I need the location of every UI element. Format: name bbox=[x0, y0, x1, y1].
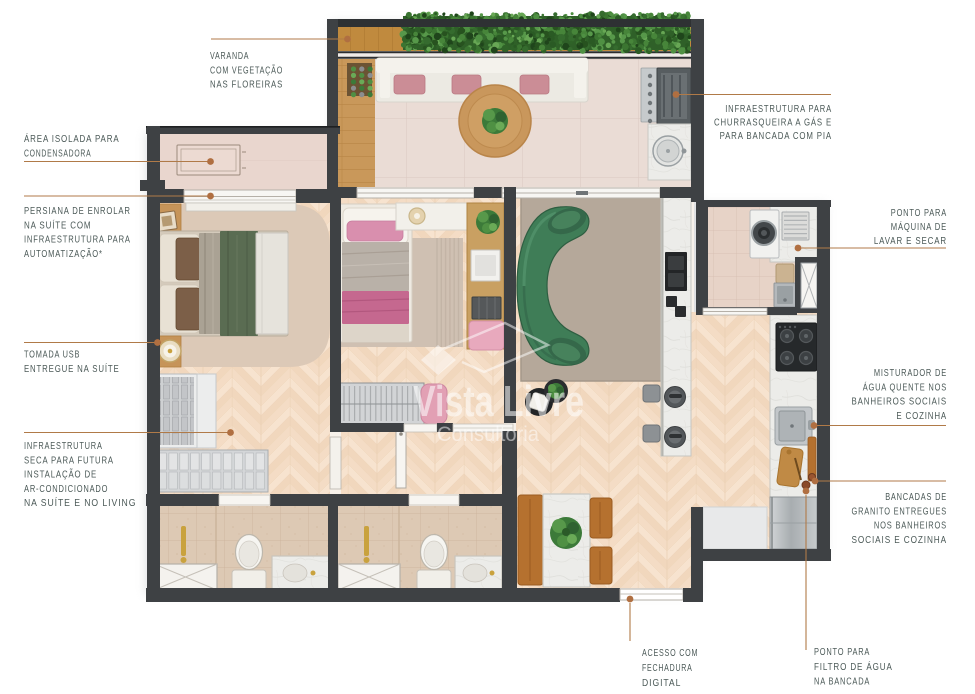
svg-text:NA SUÍTE COM: NA SUÍTE COM bbox=[24, 220, 91, 231]
svg-text:PONTO PARA: PONTO PARA bbox=[814, 647, 870, 658]
svg-text:NA BANCADA: NA BANCADA bbox=[814, 677, 870, 688]
svg-text:LAVAR E SECAR: LAVAR E SECAR bbox=[874, 236, 947, 247]
svg-text:INFRAESTRUTURA PARA: INFRAESTRUTURA PARA bbox=[725, 104, 832, 115]
svg-text:E COZINHA: E COZINHA bbox=[896, 411, 947, 422]
svg-text:AUTOMATIZAÇÃO*: AUTOMATIZAÇÃO* bbox=[24, 249, 103, 260]
svg-text:NOS BANHEIROS: NOS BANHEIROS bbox=[874, 521, 947, 532]
svg-text:MISTURADOR DE: MISTURADOR DE bbox=[874, 368, 947, 379]
svg-text:NAS FLOREIRAS: NAS FLOREIRAS bbox=[210, 80, 283, 91]
svg-text:BANCADAS DE: BANCADAS DE bbox=[885, 492, 947, 503]
svg-text:ÁREA ISOLADA PARA: ÁREA ISOLADA PARA bbox=[24, 134, 120, 145]
svg-text:PONTO PARA: PONTO PARA bbox=[891, 208, 947, 219]
svg-text:Consultoria: Consultoria bbox=[437, 423, 539, 446]
svg-text:CHURRASQUEIRA A GÁS E: CHURRASQUEIRA A GÁS E bbox=[714, 118, 832, 129]
svg-text:FECHADURA: FECHADURA bbox=[642, 663, 693, 674]
svg-text:INFRAESTRUTURA PARA: INFRAESTRUTURA PARA bbox=[24, 235, 131, 246]
svg-text:FILTRO DE ÁGUA: FILTRO DE ÁGUA bbox=[814, 662, 893, 673]
svg-text:INFRAESTRUTURA: INFRAESTRUTURA bbox=[24, 441, 103, 452]
svg-text:Vista Livre: Vista Livre bbox=[413, 377, 584, 426]
svg-text:PARA BANCADA COM PIA: PARA BANCADA COM PIA bbox=[720, 131, 832, 142]
svg-text:VARANDA: VARANDA bbox=[210, 51, 249, 62]
svg-text:GRANITO ENTREGUES: GRANITO ENTREGUES bbox=[852, 506, 948, 517]
svg-text:NA SUÍTE E NO LIVING: NA SUÍTE E NO LIVING bbox=[24, 498, 136, 509]
svg-text:PERSIANA DE ENROLAR: PERSIANA DE ENROLAR bbox=[24, 206, 131, 217]
svg-text:MÁQUINA DE: MÁQUINA DE bbox=[891, 222, 947, 233]
svg-text:SECA PARA FUTURA: SECA PARA FUTURA bbox=[24, 455, 114, 466]
svg-text:ACESSO COM: ACESSO COM bbox=[642, 648, 698, 659]
svg-text:ENTREGUE NA SUÍTE: ENTREGUE NA SUÍTE bbox=[24, 364, 120, 375]
svg-text:CONDENSADORA: CONDENSADORA bbox=[24, 148, 91, 159]
svg-text:BANHEIROS SOCIAIS: BANHEIROS SOCIAIS bbox=[852, 397, 948, 408]
svg-text:TOMADA USB: TOMADA USB bbox=[24, 350, 80, 361]
svg-text:ÁGUA QUENTE NOS: ÁGUA QUENTE NOS bbox=[863, 382, 947, 393]
svg-text:SOCIAIS E COZINHA: SOCIAIS E COZINHA bbox=[852, 535, 948, 546]
svg-text:INSTALAÇÃO DE: INSTALAÇÃO DE bbox=[24, 470, 97, 481]
svg-text:DIGITAL: DIGITAL bbox=[642, 678, 681, 689]
svg-text:AR-CONDICIONADO: AR-CONDICIONADO bbox=[24, 484, 108, 495]
svg-text:COM VEGETAÇÃO: COM VEGETAÇÃO bbox=[210, 65, 283, 76]
